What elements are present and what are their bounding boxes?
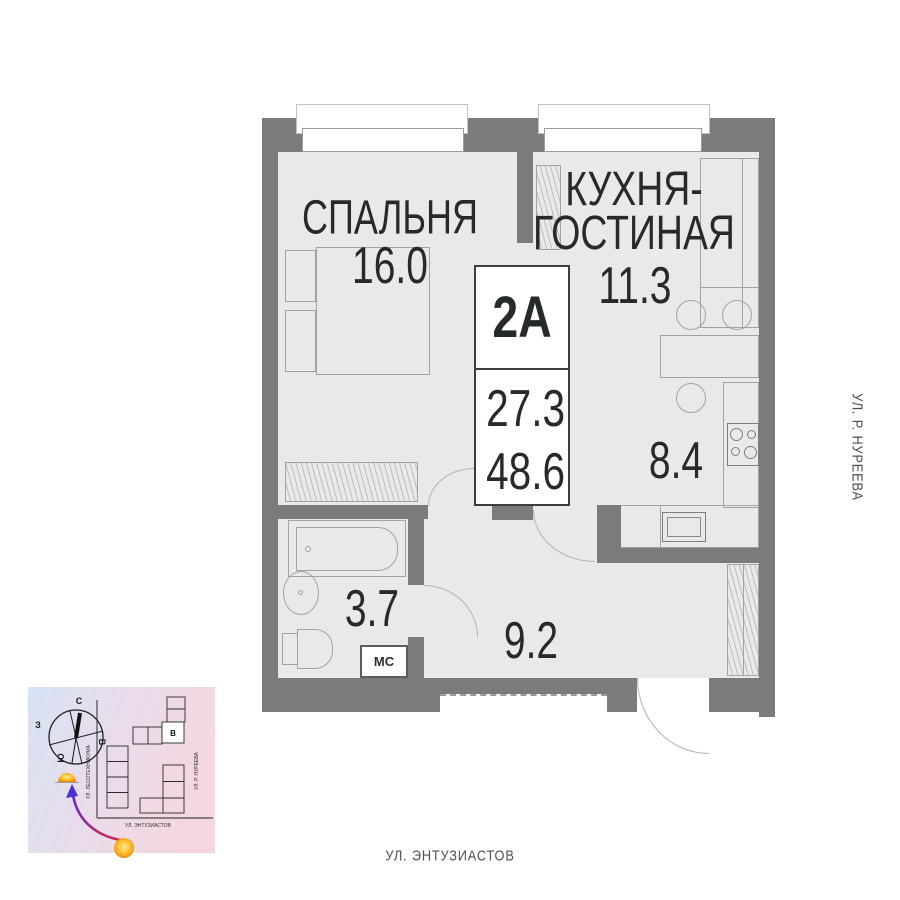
toilet-tank (282, 633, 298, 665)
counter-divider-line (660, 506, 661, 547)
wall-bath-right-upper (408, 519, 424, 585)
stove-burner-2 (747, 430, 756, 439)
street-label-bottom: УЛ. ЭНТУЗИАСТОВ (385, 848, 514, 865)
window-bedroom (302, 128, 464, 152)
kitchen-living-name: КУХНЯ-ГОСТИНАЯ (525, 168, 743, 256)
bathroom-area: 3.7 (345, 579, 399, 639)
kitchen-sink (662, 512, 706, 542)
bathtub-inner (296, 527, 398, 571)
wall-bath-right-lower (408, 637, 424, 678)
compass-north: С (76, 696, 83, 706)
wall-card-stub (492, 506, 533, 520)
unit-number: 2А (492, 284, 551, 351)
stove-burner-4 (744, 446, 757, 459)
minimap-building-label: В (170, 729, 176, 738)
total-area-value: 48.6 (486, 442, 558, 502)
stove-burner-1 (730, 428, 743, 441)
hallway-area: 9.2 (504, 611, 558, 671)
wall-left (262, 118, 278, 712)
washer-box: МС (360, 645, 408, 678)
washer-label: МС (374, 654, 394, 669)
floorplan-canvas: МС 2А 27.3 48.6 СПАЛЬНЯ 16.0 КУХНЯ-ГОСТИ… (0, 0, 900, 900)
wall-kitchen-bottom (597, 548, 759, 563)
stove-burner-3 (731, 447, 740, 456)
unit-card-top: 2А (476, 267, 568, 370)
chair-2 (722, 300, 752, 330)
bed-nightstand-top (285, 250, 316, 302)
kitchen-sink-basin (667, 517, 701, 537)
bedroom-wardrobe (285, 462, 418, 502)
hallway-closet-divider (743, 565, 744, 675)
bedroom-area: 16.0 (352, 236, 428, 296)
toilet-bowl (297, 629, 333, 669)
bottom-wall-niche (440, 694, 607, 720)
chair-1 (676, 300, 706, 330)
minimap-street-vertical-label: УЛ. ЛЕСОТЕХНИКУМА (86, 745, 92, 799)
bath-sink-drain (298, 590, 303, 595)
living-area-value: 27.3 (486, 379, 558, 439)
minimap: УЛ. ЛЕСОТЕХНИКУМА УЛ. ЭНТУЗИАСТОВ УЛ. Р.… (28, 687, 215, 863)
sun-icon (114, 838, 134, 858)
sofa-divider-line (701, 287, 759, 288)
bed-nightstand-bottom (285, 310, 316, 372)
entrance-door-arc (637, 678, 709, 754)
bathtub-faucet (305, 546, 311, 552)
compass-east: В (97, 739, 107, 746)
minimap-background (28, 687, 215, 853)
minimap-street-bottom-label: УЛ. ЭНТУЗИАСТОВ (125, 823, 171, 829)
chair-3 (676, 383, 706, 413)
minimap-street-right-label: УЛ. Р. НУРЕЕВА (194, 752, 200, 790)
stove (727, 423, 759, 466)
kitchen-living-area: 11.3 (598, 256, 671, 316)
compass-south: Ю (56, 753, 66, 762)
kitchen-zone-area: 8.4 (649, 431, 703, 491)
unit-card: 2А 27.3 48.6 (474, 265, 570, 506)
street-label-right: УЛ. Р. НУРЕЕВА (849, 393, 866, 501)
wall-bedroom-bottom (278, 505, 428, 519)
window-kitchen (544, 128, 702, 152)
compass-west: З (35, 720, 41, 730)
wall-top-middle (462, 118, 545, 152)
dining-table (660, 335, 759, 378)
wall-right (759, 118, 775, 717)
